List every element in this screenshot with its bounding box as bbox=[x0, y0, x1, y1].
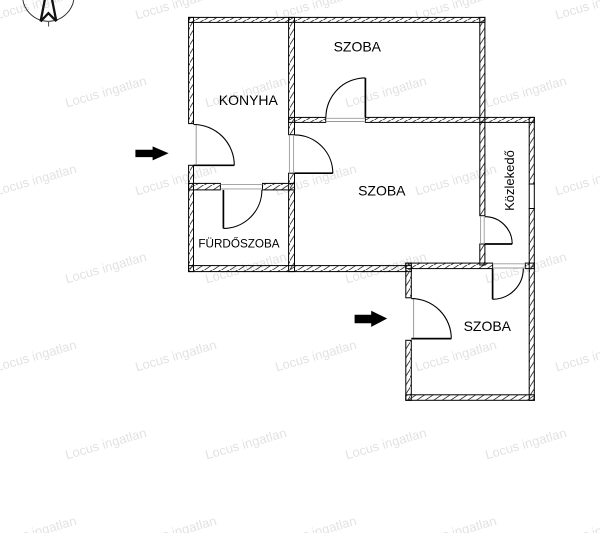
svg-text:SZOBA: SZOBA bbox=[464, 318, 512, 334]
svg-text:SZOBA: SZOBA bbox=[358, 182, 406, 198]
svg-text:KONYHA: KONYHA bbox=[219, 92, 279, 108]
svg-text:FÜRDŐSZOBA: FÜRDŐSZOBA bbox=[198, 237, 279, 251]
svg-text:SZOBA: SZOBA bbox=[334, 38, 382, 54]
svg-text:Közlekedő: Közlekedő bbox=[502, 150, 517, 211]
